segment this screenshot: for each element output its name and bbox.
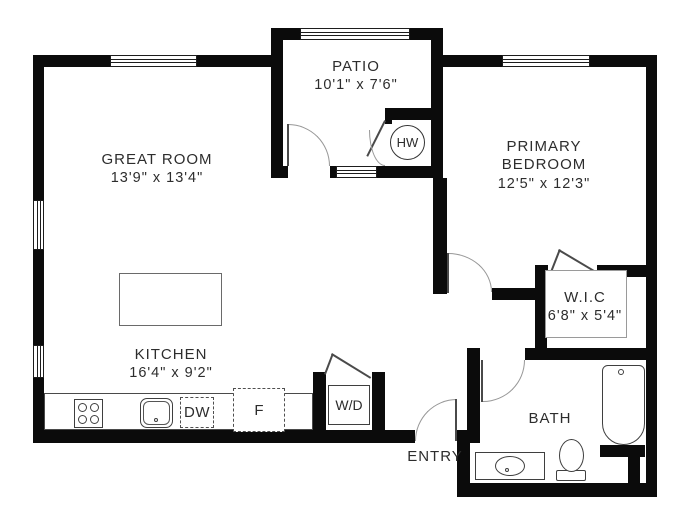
bedroom-door-leaf bbox=[447, 253, 449, 293]
wall-greatroom-bedroom bbox=[433, 178, 447, 294]
patio-label: PATIO bbox=[276, 58, 436, 76]
wall-hw-bottom bbox=[377, 166, 443, 178]
wall-tub-alcove bbox=[600, 445, 645, 457]
refrigerator-label: F bbox=[254, 402, 263, 419]
window-left-upper bbox=[33, 200, 44, 250]
wall-patio-top-b bbox=[410, 28, 443, 40]
wall-left-mid bbox=[33, 250, 44, 345]
wall-bottom-wd bbox=[313, 430, 415, 443]
entry-door-arc bbox=[415, 399, 457, 441]
window-bedroom-top bbox=[502, 55, 590, 67]
wall-chase-stub bbox=[628, 457, 640, 483]
wall-bath-left-upper bbox=[467, 348, 480, 443]
wall-patio-sill-a bbox=[271, 166, 288, 178]
primary-bedroom-dims: 12'5" x 12'3" bbox=[464, 175, 624, 193]
wall-bath-bottom bbox=[457, 483, 657, 497]
window-great-room-top bbox=[110, 55, 197, 67]
wall-wd-right bbox=[372, 372, 385, 430]
wall-left-top bbox=[33, 55, 44, 200]
washer-dryer-label: W/D bbox=[335, 397, 362, 413]
refrigerator: F bbox=[233, 388, 285, 432]
wall-top-a bbox=[33, 55, 110, 67]
wall-wic-bath bbox=[525, 348, 657, 360]
window-patio-sill bbox=[336, 166, 377, 178]
window-patio-top bbox=[300, 28, 410, 40]
wic-label: W.I.C bbox=[525, 289, 645, 307]
kitchen-island bbox=[119, 273, 222, 326]
burner-icon bbox=[78, 403, 87, 412]
bath-door-leaf bbox=[481, 360, 483, 402]
vanity-faucet bbox=[505, 468, 509, 472]
bath-label: BATH bbox=[490, 410, 610, 428]
burner-icon bbox=[78, 415, 87, 424]
washer-dryer: W/D bbox=[328, 385, 370, 425]
vanity-sink bbox=[495, 456, 525, 476]
entry-door-leaf bbox=[455, 399, 457, 441]
hw-door-arc bbox=[369, 130, 385, 166]
kitchen-label: KITCHEN bbox=[81, 346, 261, 364]
patio-door-leaf bbox=[287, 124, 289, 166]
wic-dims: 6'8" x 5'4" bbox=[525, 307, 645, 325]
bedroom-door-arc bbox=[448, 253, 492, 292]
wall-hw-top bbox=[385, 108, 443, 120]
dishwasher-label: DW bbox=[184, 404, 210, 421]
window-left-lower bbox=[33, 345, 44, 378]
burner-icon bbox=[90, 415, 99, 424]
wall-hw-jamb bbox=[385, 108, 392, 124]
toilet-bowl bbox=[559, 439, 584, 472]
wall-patio-left bbox=[271, 28, 283, 178]
primary-bedroom-label: PRIMARY BEDROOM bbox=[484, 138, 604, 174]
kitchen-sink-drain bbox=[154, 418, 158, 422]
bathtub bbox=[602, 365, 645, 445]
wall-patio-top-a bbox=[283, 28, 300, 40]
great-room-dims: 13'9" x 13'4" bbox=[67, 169, 247, 187]
hot-water-heater: HW bbox=[390, 125, 425, 160]
wic-door-leaf-b bbox=[558, 249, 596, 272]
burner-icon bbox=[90, 403, 99, 412]
bath-door-arc bbox=[483, 360, 525, 402]
kitchen-dims: 16'4" x 9'2" bbox=[81, 364, 261, 382]
wall-wd-left bbox=[313, 372, 326, 430]
wall-bedroom-top-a bbox=[443, 55, 502, 67]
hot-water-label: HW bbox=[397, 135, 419, 150]
dishwasher: DW bbox=[180, 397, 214, 428]
floor-plan: DW F W/D HW GREAT ROOM 13'9" x 13'4" PAT… bbox=[0, 0, 700, 529]
patio-door-arc bbox=[288, 124, 330, 166]
bathtub-drain bbox=[618, 369, 624, 375]
wd-door-leaf-a bbox=[324, 353, 333, 374]
patio-dims: 10'1" x 7'6" bbox=[276, 76, 436, 94]
stove bbox=[74, 399, 103, 428]
great-room-label: GREAT ROOM bbox=[67, 151, 247, 169]
wall-top-b bbox=[197, 55, 271, 67]
entry-label: ENTRY bbox=[375, 448, 495, 466]
wd-door-leaf-b bbox=[331, 353, 371, 378]
